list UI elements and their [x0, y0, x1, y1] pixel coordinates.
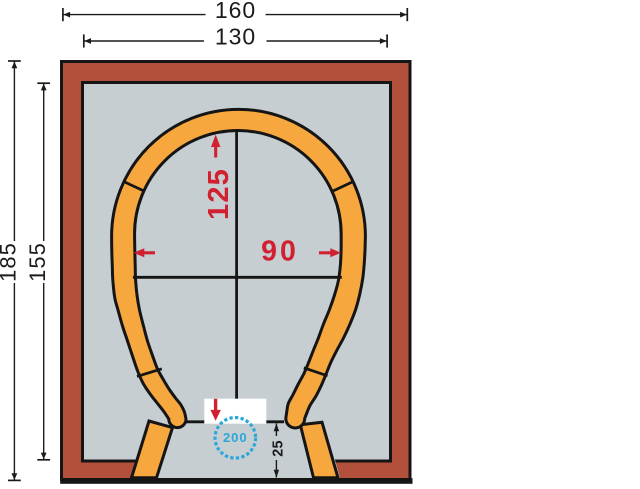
- svg-text:125: 125: [203, 168, 235, 220]
- svg-text:200: 200: [223, 430, 248, 445]
- svg-text:130: 130: [215, 24, 256, 50]
- svg-text:25: 25: [271, 440, 287, 457]
- svg-text:160: 160: [215, 0, 256, 23]
- svg-text:155: 155: [25, 242, 50, 282]
- svg-text:185: 185: [0, 242, 21, 282]
- svg-text:90: 90: [261, 235, 299, 267]
